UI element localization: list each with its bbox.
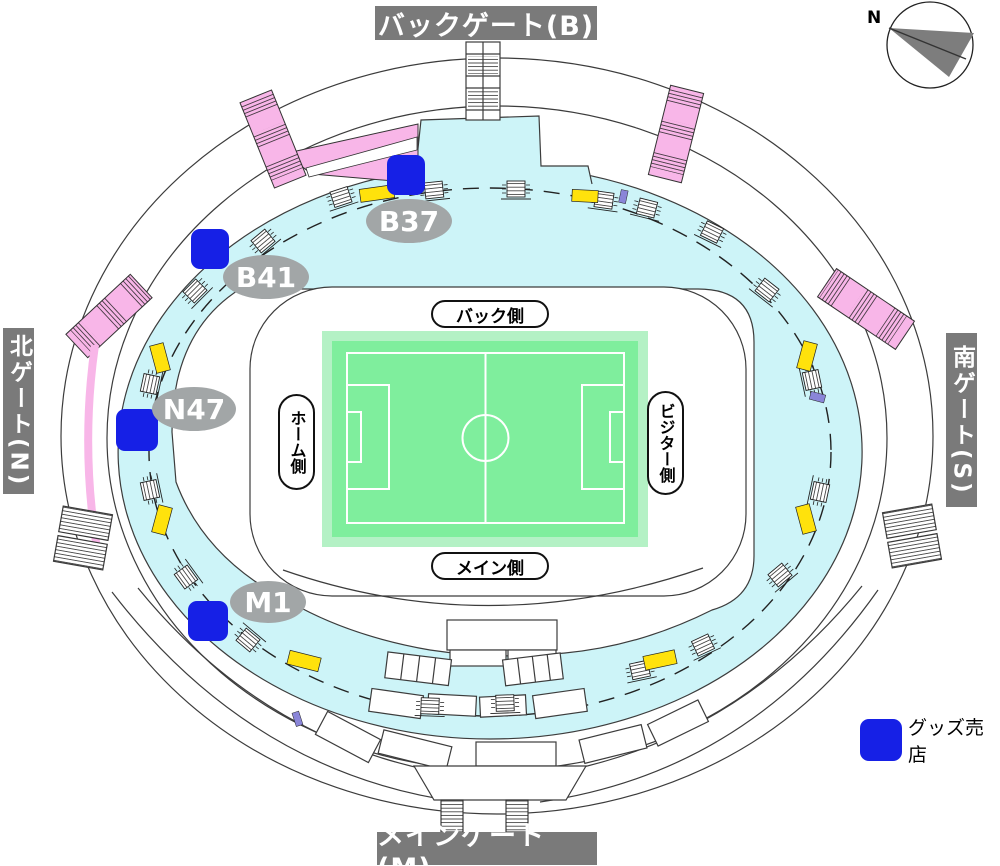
goods-shop-marker [188,601,228,641]
pitch [322,331,648,547]
goods-shop-marker [116,409,158,451]
stand-label-visitor: ビジター側 [647,391,684,495]
compass-north-label: N [867,8,881,28]
goods-shop-marker [387,155,425,195]
gate-label-back: バックゲート(B) [375,6,597,40]
legend-goods-shop-swatch [860,719,902,761]
shop-badge-n47: N47 [152,387,236,431]
gate-label-north: 北ゲート(N) [3,328,34,494]
stand-label-home: ホーム側 [278,394,315,490]
kiosk-marker [572,189,599,202]
stand-label-back: バック側 [431,300,549,328]
shop-badge-b41: B41 [223,255,309,299]
shop-badge-m1: M1 [230,581,306,623]
gate-label-main: メインゲート(M) [377,832,597,865]
compass-icon [887,2,974,88]
legend-goods-shop-label: グッズ売店 [908,719,1000,761]
shop-badge-b37: B37 [366,199,452,243]
stand-label-main: メイン側 [431,552,549,580]
stadium-map: バックゲート(B) メインゲート(M) 北ゲート(N) 南ゲート(S) N バッ… [0,0,1000,866]
goods-shop-marker [191,229,229,269]
gate-stairs-structure [466,42,500,120]
gate-label-south: 南ゲート(S) [946,333,977,507]
